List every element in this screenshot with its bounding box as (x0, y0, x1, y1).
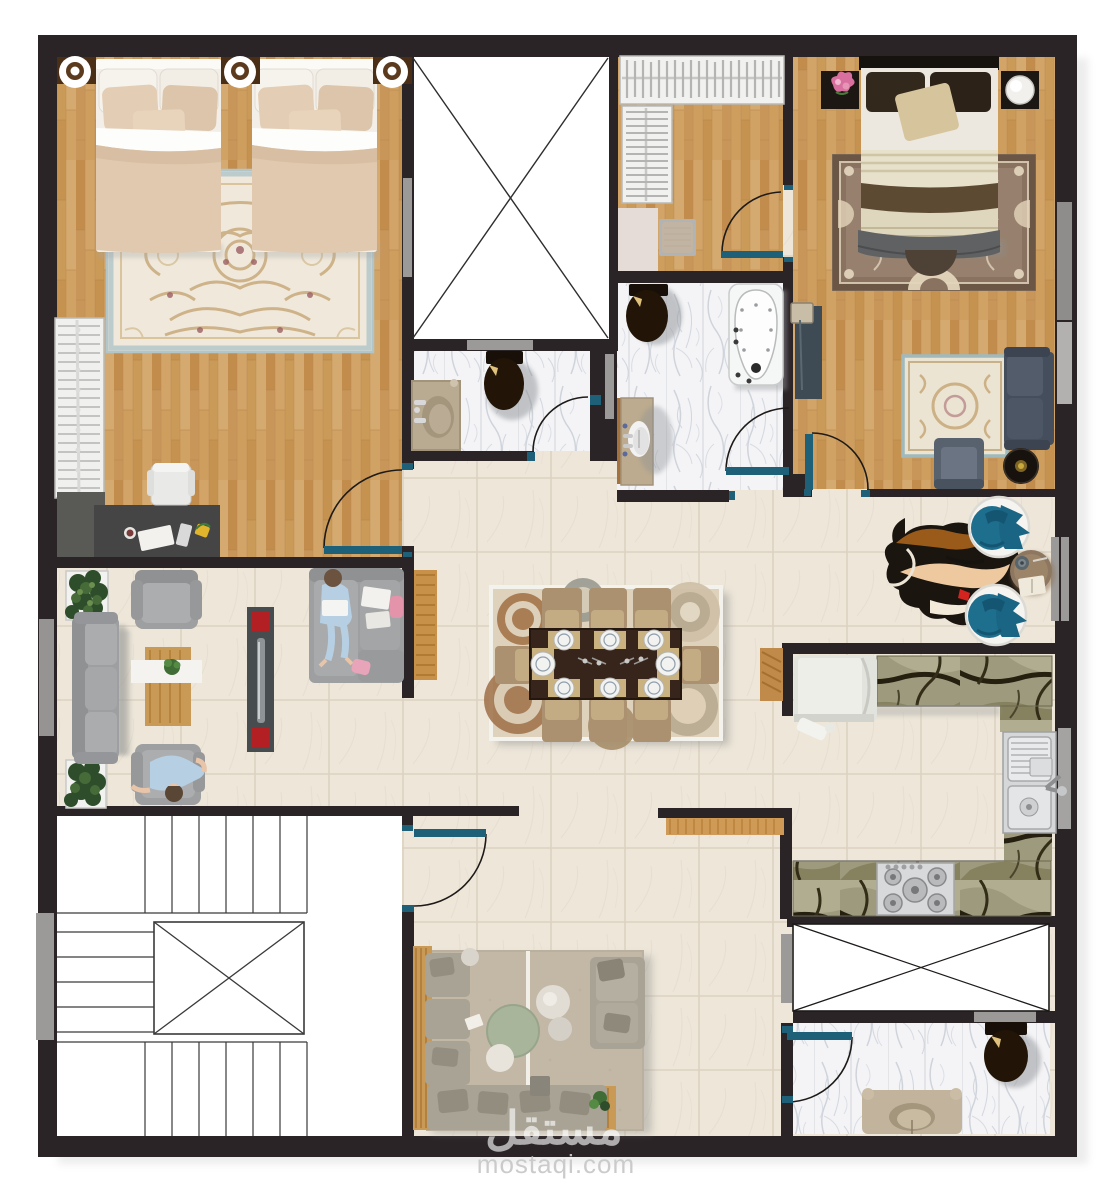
svg-text:mostaqi.com: mostaqi.com (477, 1149, 635, 1179)
svg-text:مستقل: مستقل (485, 1102, 623, 1154)
